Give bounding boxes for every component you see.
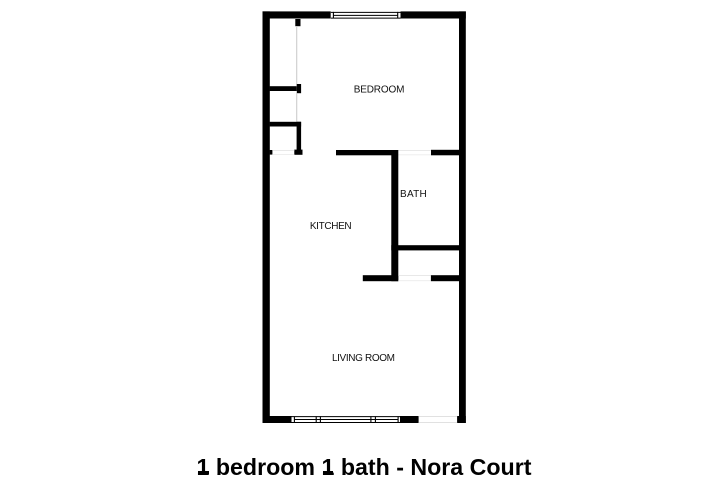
svg-text:KITCHEN: KITCHEN xyxy=(310,221,352,232)
svg-text:BATH: BATH xyxy=(400,189,427,200)
svg-text:LIVING ROOM: LIVING ROOM xyxy=(332,353,395,364)
svg-text:BEDROOM: BEDROOM xyxy=(354,85,405,96)
